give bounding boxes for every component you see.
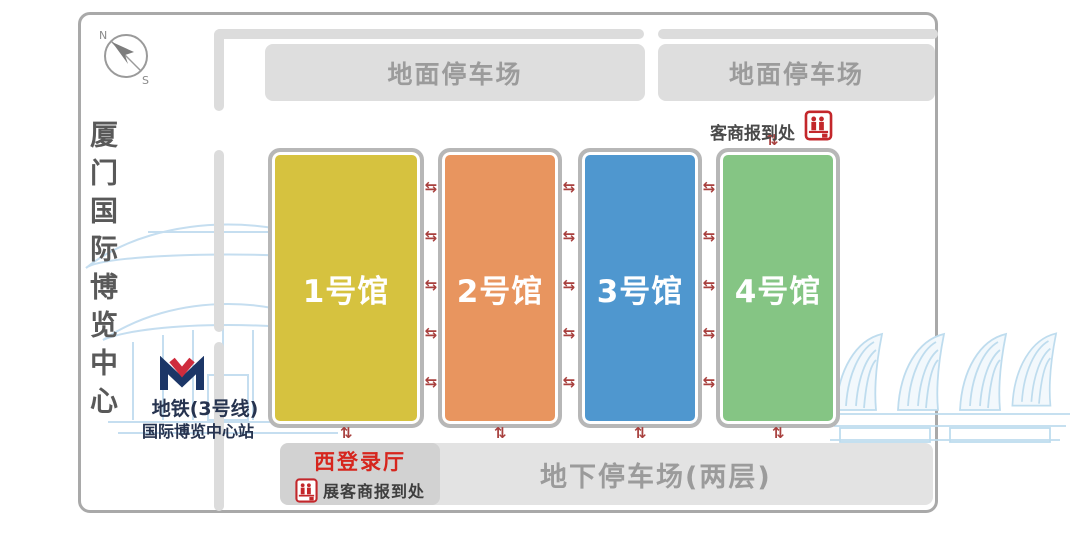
gap-arrows-hall1-hall2: ⇆ ⇆ ⇆ ⇆ ⇆ <box>422 180 440 390</box>
hall-4-label: 4号馆 <box>735 266 822 311</box>
hall-3-label: 3号馆 <box>597 266 684 311</box>
two-way-arrow-icon: ⇆ <box>425 278 438 293</box>
road-top-right-segment <box>658 29 938 39</box>
two-way-arrow-icon: ⇆ <box>563 180 576 195</box>
hall-2-label: 2号馆 <box>457 266 544 311</box>
hall-4: 4号馆 <box>716 148 840 428</box>
underground-parking-label: 地下停车场(两层) <box>540 443 772 505</box>
two-way-arrow-icon: ⇅ <box>772 426 785 441</box>
venue-title: 厦门国际博览中心 <box>88 120 116 440</box>
compass-south-label: S <box>142 74 149 86</box>
hall-1-label: 1号馆 <box>303 266 390 311</box>
two-way-arrow-icon: ⇆ <box>425 326 438 341</box>
merchant-checkin-label: 客商报到处 <box>710 119 795 144</box>
metro-line-label: 地铁(3号线) <box>140 394 270 421</box>
two-way-arrow-icon: ⇆ <box>425 229 438 244</box>
west-hall-title: 西登录厅 <box>314 446 406 476</box>
two-way-arrow-icon: ⇅ <box>340 426 353 441</box>
two-way-arrow-icon: ⇆ <box>563 375 576 390</box>
two-way-arrow-icon: ⇆ <box>563 326 576 341</box>
hall-2: 2号馆 <box>438 148 562 428</box>
west-registration-hall: 西登录厅 展客商报到处 <box>280 443 440 505</box>
compass-icon: N S <box>94 24 156 86</box>
two-way-arrow-icon: ⇆ <box>703 229 716 244</box>
two-way-arrow-icon: ⇆ <box>563 278 576 293</box>
reception-desk-icon <box>295 478 318 503</box>
metro-logo-icon <box>160 356 204 392</box>
hall-1: 1号馆 <box>268 148 424 428</box>
two-way-arrow-icon: ⇆ <box>425 180 438 195</box>
two-way-arrow-icon: ⇆ <box>703 375 716 390</box>
road-left-segment-1 <box>214 29 224 111</box>
two-way-arrow-icon: ⇆ <box>563 229 576 244</box>
road-left-segment-2 <box>214 150 224 332</box>
ground-parking-left-label: 地面停车场 <box>387 55 522 91</box>
gap-arrows-hall3-hall4: ⇆ ⇆ ⇆ ⇆ ⇆ <box>700 180 718 390</box>
ground-parking-left: 地面停车场 <box>265 44 645 101</box>
two-way-arrow-icon: ⇆ <box>703 326 716 341</box>
road-top-left-segment <box>214 29 644 39</box>
two-way-arrow-icon: ⇅ <box>634 426 647 441</box>
metro-station-label: 国际博览中心站 <box>133 418 263 442</box>
reception-desk-icon <box>804 110 833 141</box>
two-way-arrow-icon: ⇅ <box>494 426 507 441</box>
two-way-arrow-icon: ⇆ <box>703 180 716 195</box>
ground-parking-right: 地面停车场 <box>658 44 935 101</box>
gap-arrows-hall2-hall3: ⇆ ⇆ ⇆ ⇆ ⇆ <box>560 180 578 390</box>
compass-north-label: N <box>99 29 107 42</box>
two-way-arrow-icon: ⇆ <box>703 278 716 293</box>
two-way-arrow-icon: ⇆ <box>425 375 438 390</box>
ground-parking-right-label: 地面停车场 <box>729 55 864 91</box>
west-hall-checkin-label: 展客商报到处 <box>323 478 425 502</box>
hall-3: 3号馆 <box>578 148 702 428</box>
expo-center-map: N S 厦门国际博览中心 地面停车场 地面停车场 地下停车场(两层) 1号馆 2… <box>0 0 1074 533</box>
